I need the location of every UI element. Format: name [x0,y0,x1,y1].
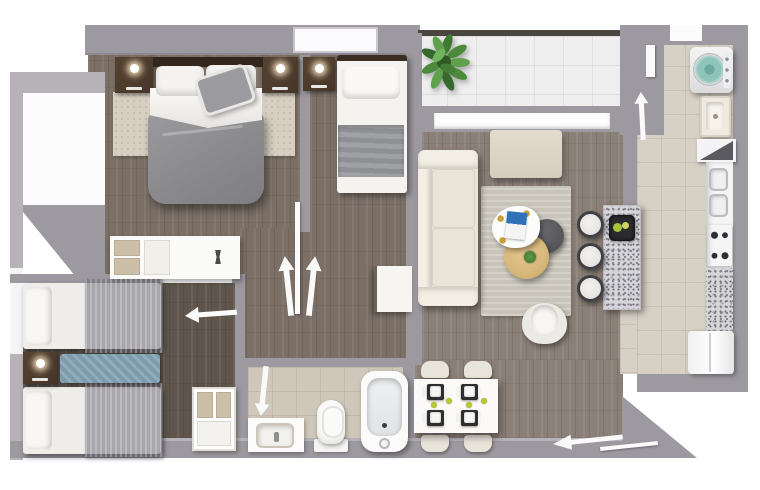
bar-stool [577,243,604,270]
dresser-drawer [114,258,140,275]
top-window [293,27,378,53]
vanity-sink [248,418,304,452]
place-setting [461,410,478,426]
nightstand-with-lamp [303,57,335,91]
dining-chair [464,435,492,452]
left-void [23,93,105,205]
right-wall [733,30,748,392]
cooktop [707,225,732,266]
nightstand-with-lamp [262,57,298,93]
bar-stool [577,211,604,238]
granite-counter [706,268,733,331]
magazine [505,211,528,240]
potted-plant [420,38,474,96]
kitchen-floor-extension [620,300,637,374]
dresser-drawer [114,240,140,256]
faucet [274,432,279,442]
lime [466,402,472,408]
laundry-sink [700,96,731,137]
sink-basin [709,194,728,217]
sofa-armrest [418,287,478,306]
sofa [418,150,478,306]
place-setting [427,410,444,426]
shelf-cell [197,421,231,446]
nightstand-with-lamp [23,352,57,384]
place-setting [427,384,444,400]
toilet [314,400,348,452]
left-void-wall [23,72,105,93]
dining-chair [421,435,449,452]
kitchen-double-sink [708,167,731,221]
gray-drape [85,279,163,353]
left-wall [10,72,23,460]
bathroom-left-wall [238,362,248,438]
bar-stool [577,275,604,302]
sofa-armrest [418,150,478,169]
pillow [26,287,52,345]
double-bed [148,60,264,202]
dining-chair [464,361,492,378]
fruit-tray [609,215,635,241]
toilet-bowl [317,400,345,444]
small-plant [524,251,536,263]
side-table [374,266,412,312]
floor-plan [0,0,760,490]
x-decor [202,250,234,264]
bottom-angled-wall [622,396,697,458]
armchair-seat [531,305,558,334]
top-right-window [670,25,702,41]
sliding-door-sill [434,113,610,129]
dining-chair [421,361,449,378]
dresser-desk-unit [110,236,240,279]
refrigerator [688,331,734,374]
faucet [379,438,390,449]
door-leaf [295,202,300,314]
door-leaf [646,45,655,77]
sofa-cushion [432,228,475,287]
twin-bed [23,283,161,349]
swivel-armchair [522,303,567,344]
washing-machine [690,47,733,93]
shelf-unit [192,387,236,451]
lime [446,398,452,404]
teal-bench-runner [60,354,160,383]
kitchen-bottom-wall [637,374,733,392]
drain [382,423,387,428]
bathtub [361,371,408,452]
twin-bed [23,387,161,454]
ottoman-bench [490,130,562,178]
place-setting [461,384,478,400]
dresser-shelf [144,240,170,275]
washer-lid [693,53,726,86]
corner-shelf [697,139,736,162]
lime [431,402,437,408]
shelf-cell [216,392,231,418]
washer-control-panel [723,52,731,88]
sink-basin [709,168,728,191]
sofa-back [418,150,432,306]
sofa-cushion [432,169,475,228]
single-bed [337,55,407,193]
lime [481,398,487,404]
shelf-cell [197,392,213,418]
bathroom-top-wall [238,358,408,367]
pillow [26,391,52,449]
gray-blanket [338,125,404,177]
kitchen-divider-wall [623,113,637,207]
pillow [342,67,400,99]
gray-drape [85,383,163,457]
